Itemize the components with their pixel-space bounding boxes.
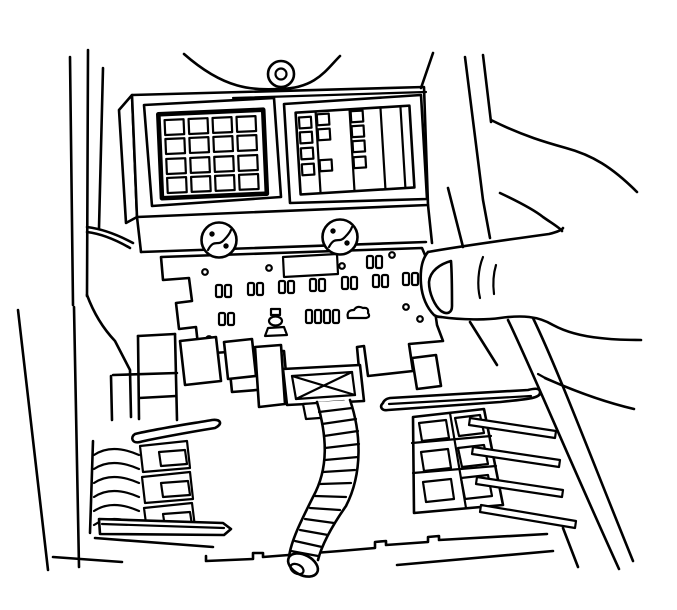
fuse-block-top: [119, 87, 428, 223]
left-connector: [90, 420, 231, 535]
finger-line: [448, 188, 463, 247]
wire-loom: [284, 400, 359, 581]
screw-icon: [202, 223, 237, 258]
left-bracket: [111, 334, 177, 420]
screw-icon: [323, 220, 358, 255]
junction-block-removal-illustration: [0, 0, 677, 610]
comb-teeth: [94, 449, 139, 525]
latch-handle: [132, 420, 220, 442]
finger-line: [470, 322, 497, 365]
finger-line: [421, 53, 433, 88]
grommet-icon: [268, 61, 294, 87]
fuse-grid: [158, 110, 267, 199]
cowl-band: [508, 318, 633, 569]
illustration-canvas: [0, 0, 677, 610]
finger-line: [483, 55, 491, 122]
right-connector: [381, 389, 576, 528]
mini-fuse-panel: [296, 106, 415, 195]
dome-opening-arc: [184, 54, 340, 89]
knuckle-curve: [500, 193, 562, 231]
hand-back-curve: [491, 120, 637, 192]
connector-slots: [140, 441, 195, 531]
